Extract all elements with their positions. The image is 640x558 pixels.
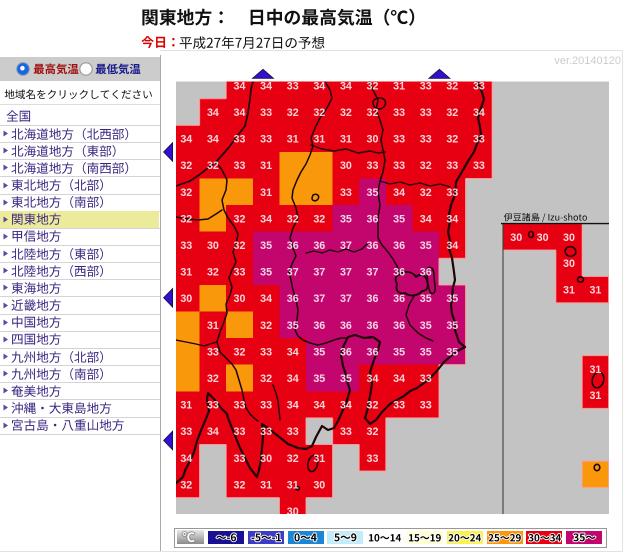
svg-text:33: 33 <box>260 346 272 358</box>
svg-text:37: 37 <box>367 267 379 279</box>
svg-text:31: 31 <box>589 364 601 376</box>
svg-text:36: 36 <box>367 346 379 358</box>
svg-text:32: 32 <box>287 107 299 119</box>
svg-text:33: 33 <box>287 80 299 92</box>
svg-text:34: 34 <box>340 400 352 412</box>
svg-text:35: 35 <box>340 213 352 225</box>
svg-text:36: 36 <box>393 240 405 252</box>
svg-text:35: 35 <box>446 346 458 358</box>
svg-text:34: 34 <box>313 400 325 412</box>
svg-text:32: 32 <box>367 107 379 119</box>
svg-text:33: 33 <box>420 80 432 92</box>
svg-text:36: 36 <box>393 320 405 332</box>
svg-text:36: 36 <box>287 293 299 305</box>
svg-text:33: 33 <box>260 134 272 146</box>
svg-text:37: 37 <box>340 240 352 252</box>
svg-text:33: 33 <box>367 453 379 465</box>
svg-text:31: 31 <box>313 453 325 465</box>
svg-text:31: 31 <box>180 267 192 279</box>
svg-text:35: 35 <box>446 293 458 305</box>
svg-text:32: 32 <box>180 213 192 225</box>
svg-text:37: 37 <box>340 293 352 305</box>
svg-text:33: 33 <box>207 346 219 358</box>
svg-text:33: 33 <box>420 400 432 412</box>
svg-text:31: 31 <box>287 134 299 146</box>
svg-text:35: 35 <box>260 267 272 279</box>
svg-text:32: 32 <box>207 160 219 172</box>
svg-text:34: 34 <box>180 134 192 146</box>
svg-text:32: 32 <box>367 80 379 92</box>
svg-text:31: 31 <box>589 390 601 402</box>
svg-text:33: 33 <box>207 400 219 412</box>
svg-text:33: 33 <box>340 187 352 199</box>
svg-text:32: 32 <box>234 346 246 358</box>
svg-text:33: 33 <box>180 426 192 438</box>
svg-text:33: 33 <box>420 134 432 146</box>
svg-text:36: 36 <box>340 320 352 332</box>
svg-text:35: 35 <box>367 187 379 199</box>
svg-text:37: 37 <box>287 267 299 279</box>
svg-text:35: 35 <box>420 240 432 252</box>
svg-text:34: 34 <box>207 107 219 119</box>
svg-text:35: 35 <box>313 373 325 385</box>
svg-text:33: 33 <box>393 107 405 119</box>
svg-text:34: 34 <box>207 426 219 438</box>
svg-text:33: 33 <box>393 400 405 412</box>
svg-text:33: 33 <box>473 160 485 172</box>
svg-text:35: 35 <box>420 346 432 358</box>
svg-text:32: 32 <box>313 213 325 225</box>
svg-text:36: 36 <box>340 346 352 358</box>
svg-text:31: 31 <box>260 479 272 491</box>
svg-text:33: 33 <box>234 400 246 412</box>
svg-text:36: 36 <box>393 267 405 279</box>
svg-text:30: 30 <box>207 240 219 252</box>
svg-text:32: 32 <box>180 187 192 199</box>
svg-text:35: 35 <box>446 320 458 332</box>
svg-text:34: 34 <box>446 240 458 252</box>
svg-text:34: 34 <box>446 213 458 225</box>
svg-text:34: 34 <box>420 213 432 225</box>
svg-text:33: 33 <box>234 134 246 146</box>
svg-text:34: 34 <box>340 80 352 92</box>
svg-text:36: 36 <box>420 267 432 279</box>
svg-text:32: 32 <box>234 240 246 252</box>
svg-text:32: 32 <box>207 267 219 279</box>
svg-text:32: 32 <box>180 479 192 491</box>
svg-text:32: 32 <box>287 213 299 225</box>
svg-text:35: 35 <box>313 346 325 358</box>
svg-text:32: 32 <box>420 160 432 172</box>
svg-text:36: 36 <box>313 320 325 332</box>
svg-text:36: 36 <box>393 293 405 305</box>
svg-text:34: 34 <box>287 400 299 412</box>
svg-text:34: 34 <box>234 107 246 119</box>
svg-text:34: 34 <box>260 80 272 92</box>
svg-text:32: 32 <box>260 373 272 385</box>
svg-text:32: 32 <box>234 213 246 225</box>
svg-text:32: 32 <box>367 426 379 438</box>
svg-text:33: 33 <box>393 160 405 172</box>
svg-text:31: 31 <box>180 400 192 412</box>
svg-text:33: 33 <box>420 107 432 119</box>
svg-text:35: 35 <box>393 346 405 358</box>
svg-text:30: 30 <box>510 232 522 244</box>
svg-text:36: 36 <box>313 240 325 252</box>
svg-text:33: 33 <box>260 400 272 412</box>
svg-text:31: 31 <box>260 160 272 172</box>
svg-text:35: 35 <box>260 240 272 252</box>
svg-text:33: 33 <box>446 160 458 172</box>
svg-text:32: 32 <box>260 320 272 332</box>
svg-text:35: 35 <box>340 373 352 385</box>
svg-text:33: 33 <box>287 426 299 438</box>
svg-text:33: 33 <box>234 160 246 172</box>
svg-text:35: 35 <box>420 320 432 332</box>
svg-text:32: 32 <box>234 479 246 491</box>
svg-text:31: 31 <box>260 187 272 199</box>
svg-text:31: 31 <box>340 134 352 146</box>
svg-text:31: 31 <box>287 479 299 491</box>
svg-text:33: 33 <box>420 373 432 385</box>
svg-text:35: 35 <box>420 293 432 305</box>
svg-text:30: 30 <box>537 232 549 244</box>
svg-text:30: 30 <box>340 160 352 172</box>
svg-text:30: 30 <box>287 506 299 518</box>
svg-text:36: 36 <box>367 213 379 225</box>
svg-text:32: 32 <box>180 160 192 172</box>
svg-text:33: 33 <box>340 426 352 438</box>
svg-text:34: 34 <box>393 373 405 385</box>
svg-text:36: 36 <box>367 293 379 305</box>
svg-text:33: 33 <box>234 267 246 279</box>
svg-text:33: 33 <box>234 453 246 465</box>
svg-text:31: 31 <box>207 320 219 332</box>
svg-text:35: 35 <box>393 213 405 225</box>
svg-text:30: 30 <box>563 232 575 244</box>
svg-text:34: 34 <box>180 453 192 465</box>
svg-text:30: 30 <box>260 453 272 465</box>
svg-text:34: 34 <box>287 373 299 385</box>
svg-text:33: 33 <box>473 80 485 92</box>
svg-text:30: 30 <box>234 293 246 305</box>
svg-text:32: 32 <box>446 134 458 146</box>
svg-text:34: 34 <box>207 134 219 146</box>
svg-text:32: 32 <box>446 107 458 119</box>
svg-text:34: 34 <box>367 373 379 385</box>
svg-text:33: 33 <box>260 426 272 438</box>
svg-text:36: 36 <box>367 240 379 252</box>
svg-text:33: 33 <box>180 240 192 252</box>
svg-text:34: 34 <box>260 293 272 305</box>
svg-text:33: 33 <box>260 107 272 119</box>
svg-text:31: 31 <box>589 285 601 297</box>
svg-text:32: 32 <box>420 187 432 199</box>
svg-text:32: 32 <box>287 453 299 465</box>
svg-text:33: 33 <box>367 160 379 172</box>
svg-text:32: 32 <box>367 400 379 412</box>
svg-text:32: 32 <box>207 373 219 385</box>
svg-text:33: 33 <box>393 134 405 146</box>
svg-text:37: 37 <box>313 267 325 279</box>
svg-text:34: 34 <box>234 80 246 92</box>
svg-text:34: 34 <box>473 107 485 119</box>
svg-text:30: 30 <box>313 479 325 491</box>
svg-text:32: 32 <box>446 80 458 92</box>
svg-text:31: 31 <box>563 285 575 297</box>
svg-text:35: 35 <box>287 320 299 332</box>
svg-text:30: 30 <box>180 293 192 305</box>
svg-text:30: 30 <box>367 134 379 146</box>
svg-text:31: 31 <box>393 80 405 92</box>
svg-text:33: 33 <box>234 426 246 438</box>
svg-text:32: 32 <box>340 107 352 119</box>
svg-text:37: 37 <box>340 267 352 279</box>
svg-text:33: 33 <box>473 134 485 146</box>
svg-text:34: 34 <box>287 346 299 358</box>
svg-text:36: 36 <box>287 240 299 252</box>
svg-text:34: 34 <box>313 80 325 92</box>
svg-text:32: 32 <box>313 107 325 119</box>
svg-text:33: 33 <box>446 187 458 199</box>
svg-text:34: 34 <box>393 187 405 199</box>
svg-text:30: 30 <box>563 258 575 270</box>
svg-text:31: 31 <box>313 134 325 146</box>
svg-text:34: 34 <box>260 213 272 225</box>
svg-text:37: 37 <box>313 293 325 305</box>
svg-text:36: 36 <box>367 320 379 332</box>
